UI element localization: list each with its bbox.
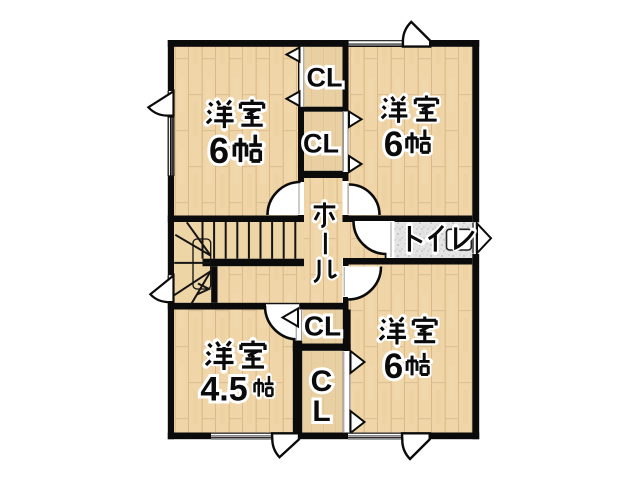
svg-text:6: 6 <box>209 130 229 171</box>
svg-text:4.5: 4.5 <box>200 371 247 409</box>
svg-text:C: C <box>311 365 333 398</box>
svg-text:CL: CL <box>304 311 341 342</box>
svg-text:6: 6 <box>384 125 403 164</box>
svg-text:L: L <box>312 395 330 428</box>
svg-text:6: 6 <box>384 347 403 386</box>
svg-text:CL: CL <box>307 63 343 93</box>
svg-text:CL: CL <box>303 129 339 159</box>
